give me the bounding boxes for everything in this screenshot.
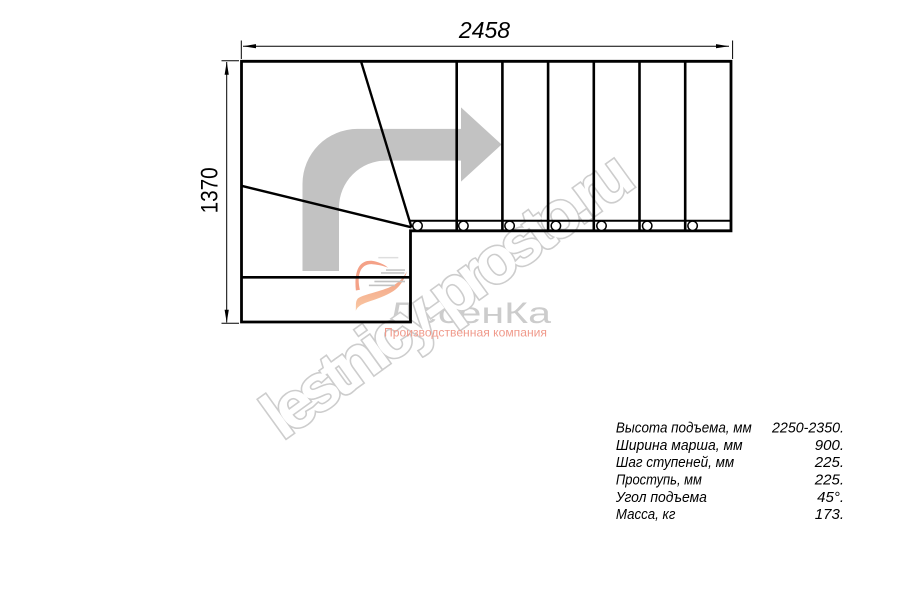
svg-text:Проступь, мм: Проступь, мм	[616, 471, 702, 488]
svg-text:Масса, кг: Масса, кг	[616, 506, 676, 523]
svg-text:45°.: 45°.	[817, 489, 844, 506]
svg-text:1370: 1370	[197, 167, 224, 213]
svg-text:Высота подъема, мм: Высота подъема, мм	[616, 419, 752, 436]
svg-text:225.: 225.	[814, 454, 844, 471]
svg-text:2458: 2458	[458, 17, 510, 43]
svg-text:Ширина марша, мм: Ширина марша, мм	[616, 437, 743, 454]
svg-text:2250-2350.: 2250-2350.	[771, 419, 844, 436]
svg-text:900.: 900.	[815, 437, 844, 454]
svg-text:225.: 225.	[814, 471, 844, 488]
svg-text:173.: 173.	[815, 506, 844, 523]
svg-text:Угол подъема: Угол подъема	[615, 489, 707, 506]
svg-text:Шаг ступеней, мм: Шаг ступеней, мм	[616, 454, 734, 471]
svg-text:Производственная компания: Производственная компания	[384, 326, 547, 340]
